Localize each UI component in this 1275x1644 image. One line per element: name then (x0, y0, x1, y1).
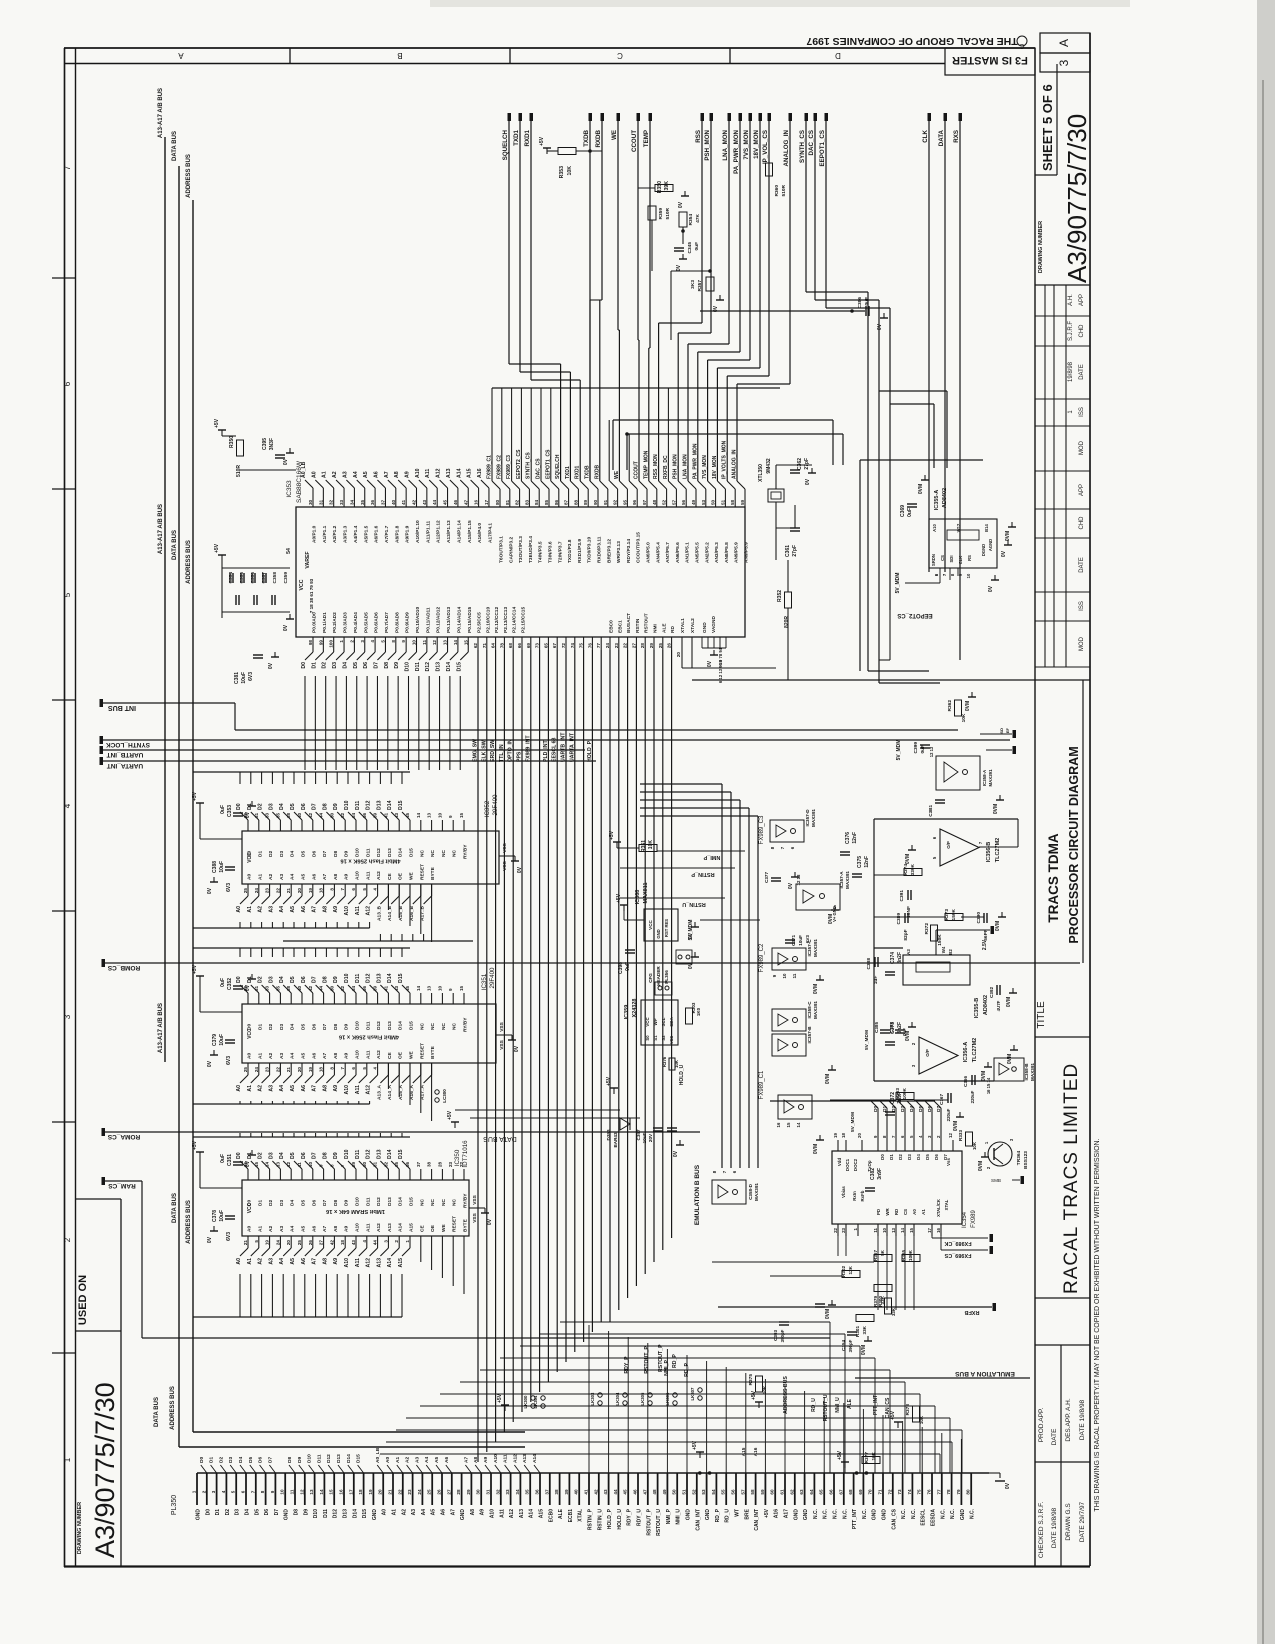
svg-text:A0: A0 (236, 1258, 242, 1265)
svg-text:0V: 0V (988, 585, 994, 592)
svg-text:BSS123: BSS123 (1023, 1151, 1029, 1169)
svg-text:D2: D2 (891, 1106, 897, 1112)
svg-text:A17/P4.1: A17/P4.1 (487, 523, 493, 543)
svg-text:A11: A11 (355, 1085, 361, 1094)
svg-text:D12: D12 (333, 1509, 339, 1518)
svg-text:D7: D7 (274, 1509, 280, 1516)
svg-text:C376: C376 (845, 832, 851, 844)
svg-text:+5V: +5V (192, 791, 198, 801)
svg-text:BYTE: BYTE (430, 1045, 436, 1059)
svg-text:A4: A4 (424, 1457, 430, 1463)
svg-text:FX989_INT: FX989_INT (525, 735, 531, 762)
svg-text:10: 10 (280, 1489, 285, 1495)
svg-text:ISS: ISS (1079, 601, 1085, 611)
svg-text:99: 99 (318, 640, 323, 646)
svg-text:A5: A5 (290, 906, 296, 913)
svg-text:D15: D15 (398, 800, 404, 810)
svg-text:PLD_INT: PLD_INT (543, 740, 549, 762)
svg-text:0uF: 0uF (220, 805, 226, 814)
svg-text:A7/P1.7: A7/P1.7 (384, 525, 390, 543)
svg-text:R373: R373 (944, 909, 950, 921)
svg-text:ALE: ALE (661, 623, 667, 633)
svg-text:A7: A7 (450, 1509, 456, 1516)
svg-text:A1: A1 (247, 1085, 253, 1092)
svg-text:D6: D6 (927, 1106, 933, 1112)
svg-text:2: 2 (349, 640, 354, 643)
svg-text:23: 23 (841, 1227, 846, 1232)
svg-text:C351: C351 (227, 1154, 233, 1166)
svg-text:BAR43: BAR43 (613, 1132, 618, 1148)
svg-text:27: 27 (319, 1240, 324, 1246)
svg-text:A14: A14 (398, 1223, 404, 1232)
svg-text:4: 4 (373, 888, 378, 891)
svg-text:HOLD_U: HOLD_U (617, 1509, 623, 1530)
svg-text:A2: A2 (401, 1509, 407, 1516)
svg-text:R360: R360 (774, 185, 780, 197)
svg-text:91: 91 (603, 499, 608, 505)
svg-text:VSS: VSS (499, 1021, 505, 1031)
svg-text:DATA BUS: DATA BUS (172, 131, 178, 161)
svg-text:D12: D12 (366, 1149, 372, 1159)
svg-text:R352: R352 (777, 590, 783, 602)
svg-text:8: 8 (260, 1490, 265, 1493)
svg-text:A3/90775/7/30: A3/90775/7/30 (90, 1382, 120, 1558)
svg-text:VSS: VSS (499, 1039, 505, 1049)
svg-text:80: 80 (495, 499, 500, 505)
svg-text:A4: A4 (290, 1053, 296, 1059)
svg-text:13: 13 (427, 985, 432, 991)
svg-text:A16/P4.0: A16/P4.0 (477, 523, 483, 543)
svg-text:RY/BY: RY/BY (463, 1193, 469, 1208)
svg-text:D3: D3 (900, 1106, 906, 1112)
svg-text:34: 34 (349, 499, 354, 505)
svg-text:INT BUS: INT BUS (108, 704, 136, 711)
svg-text:EESDA: EESDA (931, 1509, 937, 1527)
svg-text:IC353: IC353 (286, 480, 293, 498)
svg-text:2: 2 (201, 1490, 206, 1493)
svg-text:TTL_IN: TTL_IN (499, 744, 505, 762)
svg-text:A12: A12 (376, 1223, 382, 1232)
svg-text:A10: A10 (344, 1258, 350, 1268)
svg-text:A0: A0 (247, 1053, 253, 1059)
svg-text:A2: A2 (268, 874, 274, 880)
svg-text:D0: D0 (247, 1024, 253, 1030)
svg-text:D0: D0 (236, 976, 242, 983)
svg-text:A0_LB: A0_LB (375, 1447, 381, 1463)
svg-text:11: 11 (873, 1227, 878, 1232)
svg-text:96: 96 (632, 499, 637, 505)
svg-text:18: 18 (340, 1240, 345, 1246)
svg-text:90: 90 (593, 499, 598, 505)
svg-text:D9: D9 (394, 662, 400, 669)
svg-text:D7: D7 (322, 851, 328, 857)
svg-text:52: 52 (691, 1489, 696, 1495)
svg-text:D9: D9 (297, 1457, 303, 1463)
svg-text:D3: D3 (268, 803, 274, 810)
svg-text:GND: GND (705, 1509, 711, 1521)
svg-text:50: 50 (672, 1489, 677, 1495)
svg-text:73: 73 (897, 1489, 902, 1495)
svg-text:A4: A4 (290, 1226, 296, 1232)
svg-text:A10: A10 (355, 1050, 361, 1059)
svg-text:3n9F: 3n9F (877, 1168, 883, 1180)
svg-text:44: 44 (432, 499, 437, 505)
svg-text:MAX391: MAX391 (811, 809, 816, 827)
svg-text:20: 20 (857, 1133, 862, 1138)
svg-text:A9: A9 (480, 1509, 486, 1516)
svg-text:82pF: 82pF (903, 929, 909, 940)
svg-text:NC: NC (419, 1023, 425, 1030)
svg-text:+5V: +5V (609, 830, 615, 840)
svg-text:0V: 0V (283, 458, 289, 465)
svg-text:0V: 0V (207, 1236, 213, 1243)
svg-text:23: 23 (265, 1067, 270, 1073)
svg-text:A17_A: A17_A (420, 1084, 426, 1099)
svg-text:0V: 0V (487, 1218, 493, 1225)
svg-text:T3EUD/P3.4: T3EUD/P3.4 (528, 536, 534, 563)
svg-text:VAGND: VAGND (711, 615, 717, 633)
svg-text:VSS: VSS (502, 842, 508, 852)
svg-text:N.C.: N.C. (862, 1508, 868, 1519)
svg-text:FX989_CK: FX989_CK (944, 1240, 971, 1246)
svg-text:65: 65 (543, 643, 548, 649)
svg-text:IC357-A: IC357-A (839, 871, 844, 889)
svg-text:ERD_SW: ERD_SW (490, 740, 496, 762)
svg-text:A5: A5 (301, 1053, 307, 1059)
svg-text:A6/P1.6: A6/P1.6 (374, 525, 380, 543)
svg-text:A13: A13 (519, 1509, 525, 1518)
svg-text:41: 41 (584, 1489, 589, 1495)
svg-text:O/P: O/P (925, 1049, 930, 1057)
svg-text:B: B (397, 51, 402, 60)
svg-text:20: 20 (378, 1489, 383, 1495)
svg-text:ISS: ISS (1079, 407, 1085, 417)
svg-text:AN6/P5.6: AN6/P5.6 (675, 542, 681, 563)
svg-text:W4: W4 (941, 946, 946, 953)
svg-text:W12: W12 (956, 523, 961, 532)
svg-text:32: 32 (329, 499, 334, 505)
svg-text:0VM: 0VM (1007, 1054, 1013, 1064)
svg-text:40: 40 (391, 499, 396, 505)
svg-text:D3: D3 (235, 1509, 241, 1516)
svg-text:57: 57 (671, 499, 676, 505)
svg-text:5: 5 (362, 888, 367, 891)
svg-text:FX989_CS: FX989_CS (944, 1252, 971, 1258)
svg-text:USED ON: USED ON (77, 1275, 89, 1325)
svg-text:D10: D10 (344, 973, 350, 983)
svg-text:21: 21 (286, 1067, 291, 1073)
svg-text:D3: D3 (279, 851, 285, 857)
svg-text:60: 60 (770, 1489, 775, 1495)
svg-text:D2: D2 (268, 1024, 274, 1030)
svg-text:8: 8 (391, 640, 396, 643)
svg-text:A15_B: A15_B (398, 905, 404, 920)
svg-text:DATE 19/8/98: DATE 19/8/98 (1051, 1507, 1058, 1548)
svg-text:THE RACAL GROUP OF COMPANIES 1: THE RACAL GROUP OF COMPANIES 1997 (806, 35, 1017, 47)
svg-text:98: 98 (308, 640, 313, 646)
svg-text:D10: D10 (355, 1021, 361, 1030)
svg-text:62: 62 (473, 643, 478, 649)
svg-text:R351: R351 (641, 840, 647, 852)
svg-text:5V_MDM: 5V_MDM (895, 573, 901, 594)
svg-text:10: 10 (412, 640, 417, 646)
svg-text:D15: D15 (409, 1197, 415, 1206)
svg-text:R377: R377 (864, 1452, 870, 1464)
svg-text:A2: A2 (258, 906, 264, 913)
svg-text:DES.APP. A.H.: DES.APP. A.H. (1065, 1398, 1072, 1441)
svg-text:BYTE: BYTE (463, 1218, 469, 1232)
svg-text:D9: D9 (333, 1152, 339, 1159)
svg-text:CCOUT/P3.15: CCOUT/P3.15 (636, 532, 642, 563)
svg-text:A11: A11 (365, 1050, 371, 1059)
svg-text:TR364: TR364 (1016, 1150, 1022, 1165)
svg-text:D6: D6 (301, 1152, 307, 1159)
svg-text:76: 76 (927, 1489, 932, 1495)
svg-text:D4: D4 (279, 803, 285, 810)
svg-text:RESET: RESET (452, 1216, 458, 1232)
svg-text:DOC1: DOC1 (845, 1158, 850, 1171)
svg-text:+5V: +5V (616, 893, 622, 903)
svg-text:20: 20 (676, 652, 681, 658)
svg-text:IC357-D: IC357-D (805, 809, 810, 827)
svg-text:TLC27M2: TLC27M2 (972, 1038, 978, 1062)
svg-text:A15/P1.15: A15/P1.15 (467, 520, 473, 543)
svg-text:D10: D10 (344, 1149, 350, 1159)
svg-text:0uF: 0uF (907, 508, 913, 517)
svg-text:A11: A11 (355, 906, 361, 915)
svg-text:68: 68 (508, 643, 513, 649)
svg-text:0V: 0V (268, 662, 274, 669)
svg-text:10: 10 (882, 1227, 887, 1232)
svg-text:14: 14 (900, 1227, 905, 1232)
svg-text:10: 10 (782, 973, 787, 978)
svg-text:35: 35 (360, 499, 365, 505)
svg-text:A6: A6 (301, 1258, 307, 1265)
svg-text:15: 15 (459, 812, 464, 818)
svg-text:CHD: CHD (1079, 324, 1085, 338)
svg-text:RSTIN: RSTIN (635, 618, 641, 633)
svg-text:RD_U: RD_U (811, 1398, 817, 1412)
svg-text:4Mbit Flash 256K x 16: 4Mbit Flash 256K x 16 (338, 1034, 399, 1040)
svg-text:D353: D353 (606, 1129, 611, 1140)
svg-text:D0: D0 (247, 851, 253, 857)
svg-text:+5V: +5V (447, 1110, 453, 1120)
svg-text:15: 15 (329, 1489, 334, 1495)
svg-text:35: 35 (525, 1489, 530, 1495)
svg-text:VSS: VSS (669, 1036, 674, 1045)
svg-text:C379: C379 (212, 1034, 218, 1046)
svg-text:R367: R367 (873, 1250, 878, 1261)
svg-text:0V: 0V (1005, 1482, 1011, 1489)
svg-text:N.C.: N.C. (823, 1508, 829, 1519)
svg-text:A7: A7 (322, 1226, 328, 1232)
svg-text:28: 28 (456, 1489, 461, 1495)
svg-text:D9: D9 (303, 1509, 309, 1516)
svg-text:N.C.: N.C. (813, 1508, 819, 1519)
svg-text:1: 1 (405, 1240, 410, 1243)
svg-text:D2: D2 (258, 803, 264, 810)
svg-text:CS: CS (903, 1209, 908, 1215)
svg-text:10K: 10K (961, 713, 967, 722)
svg-text:R375: R375 (748, 1374, 754, 1386)
svg-text:EESCL 63: EESCL 63 (552, 737, 558, 762)
svg-text:RXDB: RXDB (595, 129, 602, 147)
svg-text:33: 33 (505, 1489, 510, 1495)
svg-text:11: 11 (422, 640, 427, 645)
svg-text:RSTIN_U: RSTIN_U (597, 1509, 603, 1531)
svg-text:D11: D11 (316, 1454, 322, 1463)
svg-text:CAPIN/P3.2: CAPIN/P3.2 (508, 537, 514, 563)
svg-text:C388: C388 (212, 861, 218, 873)
svg-text:TRACS TDMA: TRACS TDMA (1046, 833, 1061, 922)
svg-text:NMI_U: NMI_U (676, 1509, 682, 1525)
svg-text:21: 21 (388, 1489, 393, 1495)
svg-text:50: 50 (711, 499, 716, 505)
svg-text:A3/P1.3: A3/P1.3 (343, 525, 349, 543)
svg-text:25: 25 (243, 888, 248, 894)
svg-text:81: 81 (505, 499, 510, 505)
svg-text:A6: A6 (444, 1457, 450, 1463)
svg-text:46: 46 (633, 1489, 638, 1495)
svg-text:D9: D9 (344, 851, 350, 857)
svg-text:+5V: +5V (837, 1450, 843, 1460)
svg-text:D4: D4 (342, 662, 348, 669)
svg-text:87: 87 (564, 499, 569, 505)
svg-text:A0: A0 (912, 1209, 917, 1215)
svg-text:A16: A16 (753, 1447, 759, 1456)
svg-text:D15: D15 (398, 1149, 404, 1159)
svg-text:69: 69 (858, 1489, 863, 1495)
svg-text:D0: D0 (236, 1152, 242, 1159)
svg-text:5V_MDM: 5V_MDM (850, 1112, 856, 1132)
svg-text:D8: D8 (333, 851, 339, 857)
svg-text:UARTB_INT: UARTB_INT (107, 751, 144, 758)
svg-text:A4: A4 (290, 874, 296, 880)
svg-text:11: 11 (792, 973, 797, 978)
svg-text:D8: D8 (333, 1024, 339, 1030)
svg-text:NMI_U: NMI_U (835, 1397, 841, 1413)
svg-text:A16_A: A16_A (409, 1084, 415, 1099)
svg-text:70: 70 (868, 1489, 873, 1495)
svg-text:OE: OE (398, 872, 404, 880)
svg-text:RSTOUT_P: RSTOUT_P (646, 1508, 652, 1535)
svg-text:A10: A10 (493, 1454, 499, 1463)
svg-text:10: 10 (437, 985, 442, 991)
svg-text:2.5V: 2.5V (982, 939, 988, 950)
svg-text:A4: A4 (279, 1085, 285, 1092)
svg-text:N.C.: N.C. (833, 1508, 839, 1519)
svg-text:A12: A12 (376, 871, 382, 880)
svg-text:74: 74 (570, 643, 575, 649)
svg-text:D5: D5 (925, 1154, 930, 1160)
svg-text:A0: A0 (382, 1509, 388, 1516)
svg-text:0V: 0V (245, 984, 251, 991)
svg-text:IC355-A: IC355-A (934, 490, 940, 511)
svg-text:XTAL2: XTAL2 (690, 618, 696, 633)
svg-text:D10: D10 (344, 800, 350, 810)
svg-text:WE: WE (409, 871, 415, 880)
svg-text:GND: GND (793, 1509, 799, 1521)
svg-text:D7: D7 (322, 1200, 328, 1206)
svg-text:LC300: LC300 (442, 1089, 447, 1103)
svg-text:IC354: IC354 (962, 1211, 968, 1228)
svg-text:ROMA_CS: ROMA_CS (107, 1133, 140, 1140)
svg-text:C355: C355 (239, 572, 245, 584)
svg-text:56PF: 56PF (983, 929, 989, 941)
svg-text:A17_B: A17_B (420, 905, 426, 920)
svg-text:D: D (835, 51, 841, 60)
svg-text:C345: C345 (687, 242, 693, 254)
svg-text:A10: A10 (490, 1509, 496, 1518)
svg-text:EMULATION B BUS: EMULATION B BUS (694, 1164, 701, 1225)
svg-text:510R: 510R (665, 207, 671, 219)
svg-text:P0.6/AD6: P0.6/AD6 (374, 612, 380, 633)
svg-text:6: 6 (351, 1067, 356, 1070)
svg-text:A4: A4 (279, 906, 285, 913)
svg-text:P0.10/AD10: P0.10/AD10 (415, 607, 421, 633)
svg-text:5: 5 (231, 1490, 236, 1493)
svg-text:78: 78 (946, 1489, 951, 1495)
svg-text:D6: D6 (311, 1200, 317, 1206)
svg-text:EBC1: EBC1 (617, 620, 623, 633)
svg-text:5: 5 (63, 592, 72, 597)
svg-text:0VM: 0VM (981, 1071, 987, 1081)
svg-text:D8: D8 (384, 662, 390, 669)
svg-text:18: 18 (841, 1133, 846, 1138)
svg-text:RSS: RSS (695, 130, 702, 143)
svg-text:APP: APP (1079, 484, 1085, 496)
svg-text:SCL: SCL (661, 1017, 666, 1026)
svg-text:ALE: ALE (847, 1398, 853, 1409)
svg-text:69: 69 (526, 643, 531, 649)
svg-text:SQUELCH: SQUELCH (502, 129, 509, 160)
svg-text:D8: D8 (322, 976, 328, 983)
svg-text:13: 13 (309, 1489, 314, 1495)
svg-text:5K: 5K (880, 1249, 885, 1256)
svg-text:MAX391: MAX391 (845, 871, 850, 889)
svg-text:+5V: +5V (539, 136, 545, 146)
svg-text:A8: A8 (333, 1226, 339, 1232)
svg-text:6V3: 6V3 (248, 672, 254, 681)
svg-text:NC: NC (452, 850, 458, 857)
svg-text:D13: D13 (387, 1197, 393, 1206)
svg-text:IC358-C: IC358-C (807, 1001, 812, 1019)
svg-text:4: 4 (362, 1240, 367, 1243)
svg-text:A6: A6 (301, 1085, 307, 1092)
svg-text:VSS: VSS (472, 1194, 478, 1204)
svg-text:10uF: 10uF (219, 1210, 225, 1222)
svg-text:GND: GND (960, 1509, 966, 1521)
svg-text:22: 22 (275, 888, 280, 894)
svg-text:43: 43 (351, 1240, 356, 1246)
svg-text:A12: A12 (366, 1258, 372, 1268)
svg-text:43: 43 (422, 499, 427, 505)
svg-text:0uF: 0uF (625, 962, 631, 971)
svg-text:18: 18 (319, 888, 324, 894)
svg-text:BYTE: BYTE (430, 866, 436, 880)
svg-text:D5: D5 (918, 1106, 924, 1112)
svg-text:40: 40 (574, 1489, 579, 1495)
svg-text:VSS: VSS (472, 1212, 478, 1222)
svg-text:A7: A7 (312, 906, 318, 913)
svg-text:10uF: 10uF (241, 672, 247, 684)
svg-text:A8: A8 (322, 906, 328, 913)
svg-text:A4: A4 (279, 1258, 285, 1265)
svg-text:RXFB: RXFB (964, 1309, 979, 1315)
svg-text:C393: C393 (773, 1330, 778, 1341)
svg-text:D15: D15 (409, 1021, 415, 1030)
svg-text:A3: A3 (414, 1457, 420, 1463)
